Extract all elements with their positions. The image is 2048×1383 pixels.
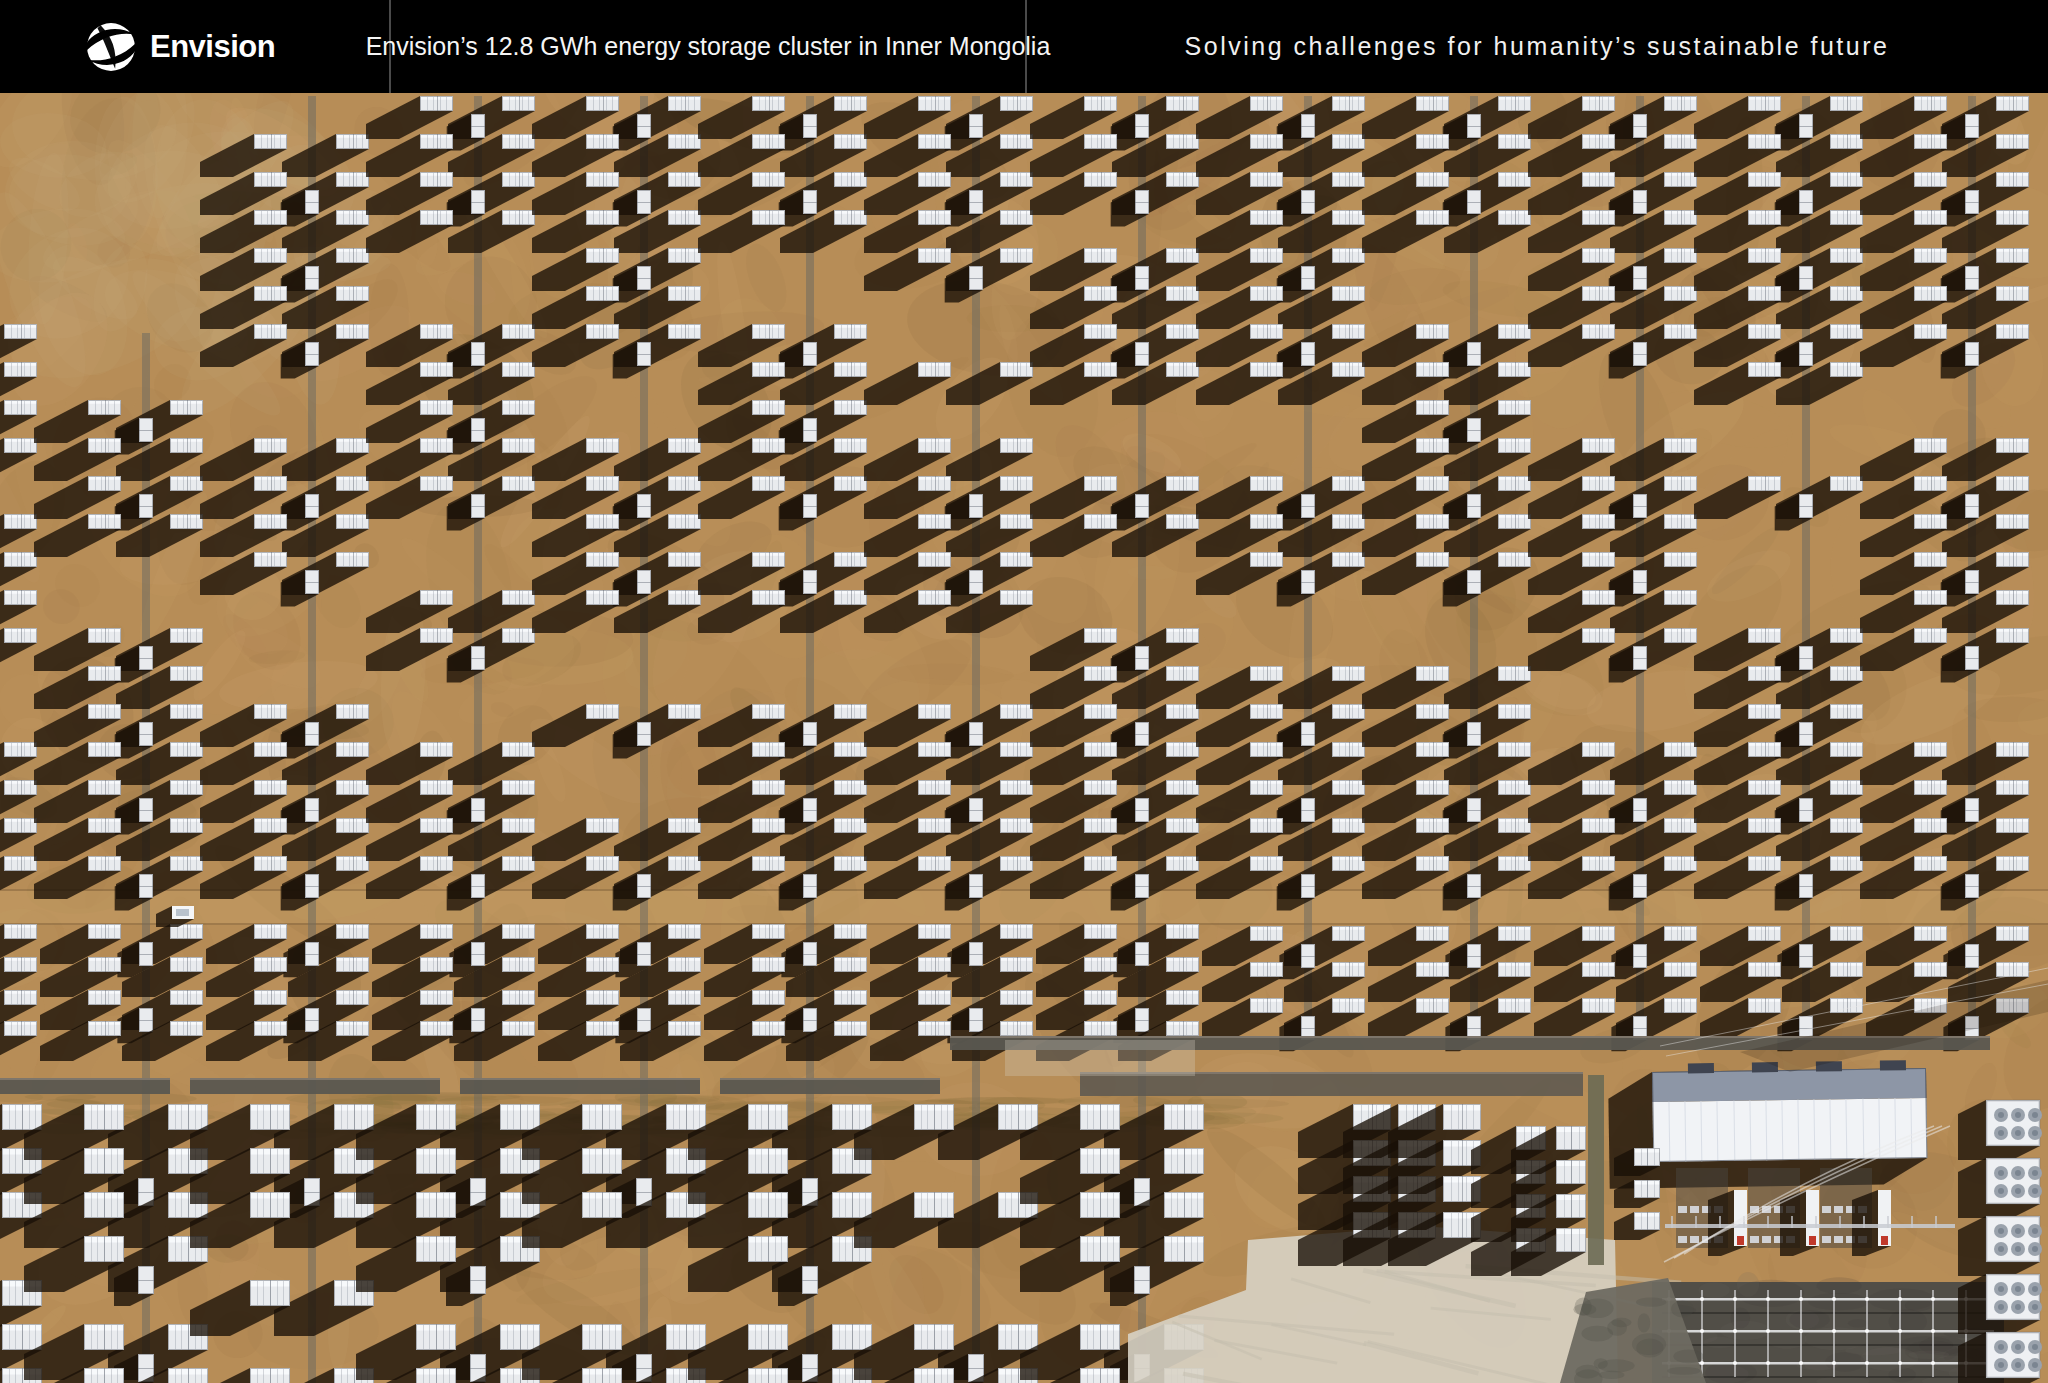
header-bar: Envision Envision’s 12.8 GWh energy stor… xyxy=(0,0,2048,93)
screenshot-root: Envision Envision’s 12.8 GWh energy stor… xyxy=(0,0,2048,1383)
envision-logo: Envision xyxy=(0,0,390,93)
photo-caption: Envision’s 12.8 GWh energy storage clust… xyxy=(390,0,1026,93)
brand-tagline: Solving challenges for humanity’s sustai… xyxy=(1026,0,2048,93)
envision-wordmark: Envision xyxy=(150,29,275,65)
envision-swirl-globe-icon xyxy=(85,21,137,73)
aerial-photo-energy-storage-farm xyxy=(0,0,2048,1383)
